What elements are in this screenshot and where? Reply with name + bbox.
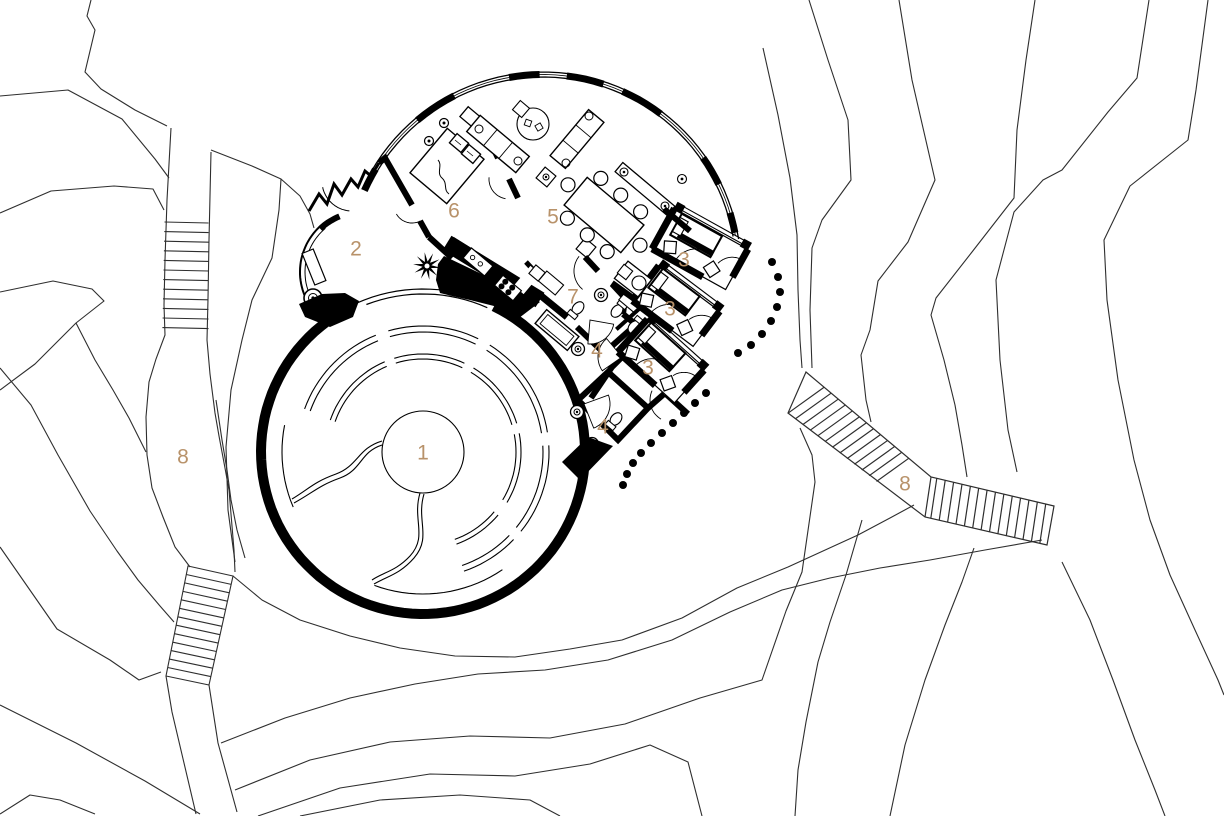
svg-text:6: 6 xyxy=(448,200,460,223)
svg-text:2: 2 xyxy=(350,238,362,261)
svg-text:3: 3 xyxy=(642,357,654,380)
svg-text:8: 8 xyxy=(899,473,911,496)
svg-text:4: 4 xyxy=(597,416,609,439)
svg-text:4: 4 xyxy=(591,340,603,363)
svg-text:5: 5 xyxy=(547,206,559,229)
svg-text:1: 1 xyxy=(417,442,429,465)
svg-text:3: 3 xyxy=(664,298,676,321)
svg-text:3: 3 xyxy=(678,249,690,272)
svg-text:7: 7 xyxy=(567,286,579,309)
svg-text:8: 8 xyxy=(177,446,189,469)
